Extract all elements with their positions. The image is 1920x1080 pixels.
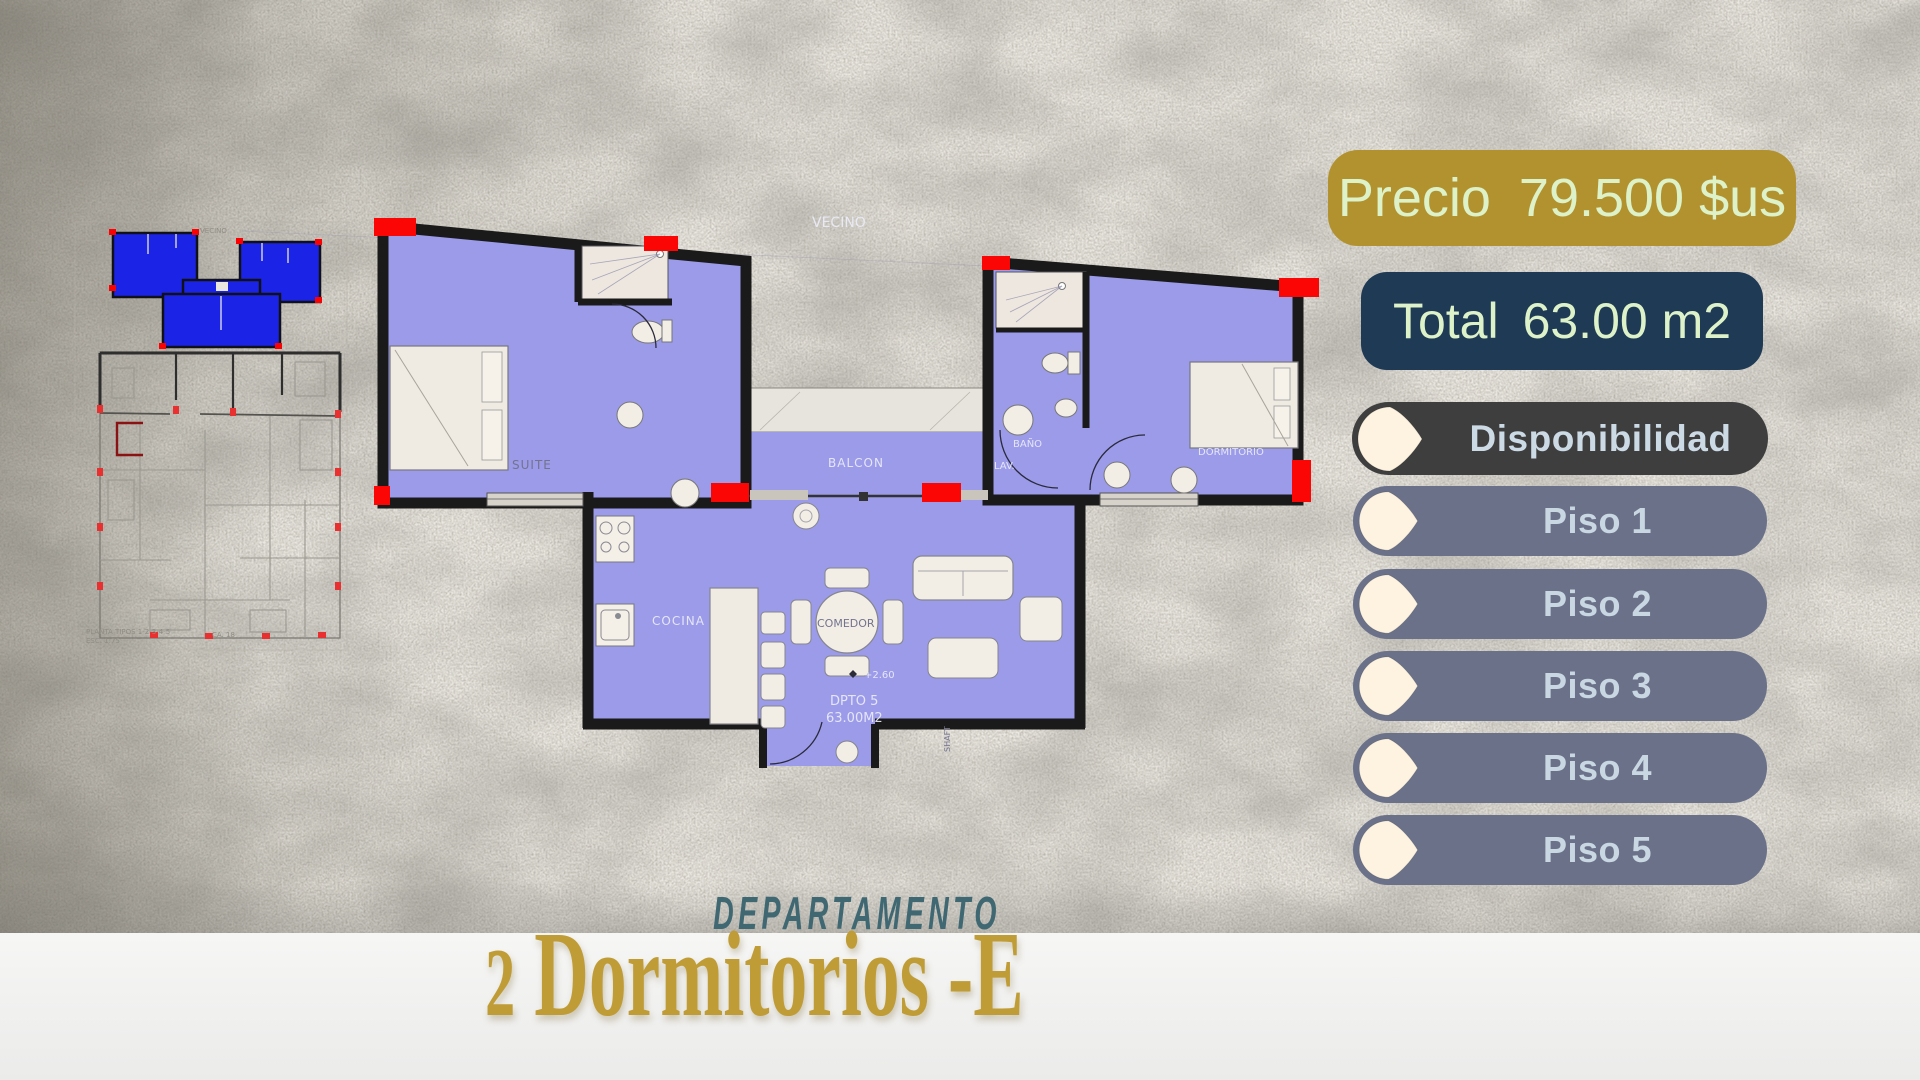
floor-button-label: Piso 3 [1428,665,1767,707]
label-area: 63.00M2 [826,711,883,726]
floor-button-piso-3[interactable]: Piso 3 [1353,651,1767,721]
stove [596,516,634,562]
thumb-vecino-label: VECINO [200,227,227,235]
floor-button-label: Piso 5 [1428,829,1767,871]
floor-button-piso-1[interactable]: Piso 1 [1353,486,1767,556]
floor-button-label: Piso 1 [1428,500,1767,542]
floor-button-label: Piso 4 [1428,747,1767,789]
neighbour-terrace [748,388,988,432]
floor-button-piso-2[interactable]: Piso 2 [1353,569,1767,639]
drop-icon [1358,490,1428,552]
kitchen-bar-counter [710,588,758,724]
thumb-esc-label: ESC. 1:75 [86,637,120,645]
drop-icon [1358,737,1428,799]
title-number: 2 [485,929,515,1037]
label-balcon: BALCON [828,456,884,470]
armchair [928,638,998,678]
bedroom-bathroom-shower [996,272,1086,328]
availability-header-pill[interactable]: Disponibilidad [1352,402,1768,475]
label-level: +2.60 [864,670,895,681]
label-vecino: VECINO [812,215,866,231]
label-shaft: SHAFT [943,726,952,752]
label-suite: SUITE [512,458,552,472]
bidet [1055,399,1077,417]
price-value: 79.500 $us [1519,167,1786,229]
toilet [1042,353,1068,373]
total-area-badge: Total 63.00 m2 [1361,272,1763,370]
availability-header-label: Disponibilidad [1433,418,1768,460]
label-dormitorio: DORMITORIO [1198,447,1264,458]
drop-icon [1358,655,1428,717]
title-name: Dormitorios -E [515,907,1023,1042]
label-lav: LAV. [994,461,1015,472]
main-title-wrap: 2 Dormitorios -E [154,914,1354,1036]
label-unit: DPTO 5 [830,694,878,709]
floor-button-piso-4[interactable]: Piso 4 [1353,733,1767,803]
label-bano: BAÑO [1013,437,1042,450]
price-badge: Precio 79.500 $us [1328,150,1796,246]
label-cocina: COCINA [652,614,705,628]
side-chair [1020,597,1062,641]
drop-icon [1358,819,1428,881]
floor-button-label: Piso 2 [1428,583,1767,625]
label-comedor: COMEDOR [817,617,875,630]
price-label: Precio [1338,167,1491,229]
suite-toilet [632,321,664,343]
floor-button-piso-5[interactable]: Piso 5 [1353,815,1767,885]
main-title: 2 Dormitorios -E [485,914,1024,1036]
total-label: Total [1393,292,1499,350]
total-value: 63.00 m2 [1523,292,1731,350]
apartment-poster: VECINO PLANTA TIPOS 1-2-3-4-5 ESC. 1:75 … [0,0,1920,1080]
plant [793,503,819,529]
drop-icon [1357,405,1433,473]
thumb-planta-label: PLANTA TIPOS 1-2-3-4-5 [86,628,170,636]
thumb-calle-label: CA. 18 [212,631,235,639]
drop-icon [1358,573,1428,635]
